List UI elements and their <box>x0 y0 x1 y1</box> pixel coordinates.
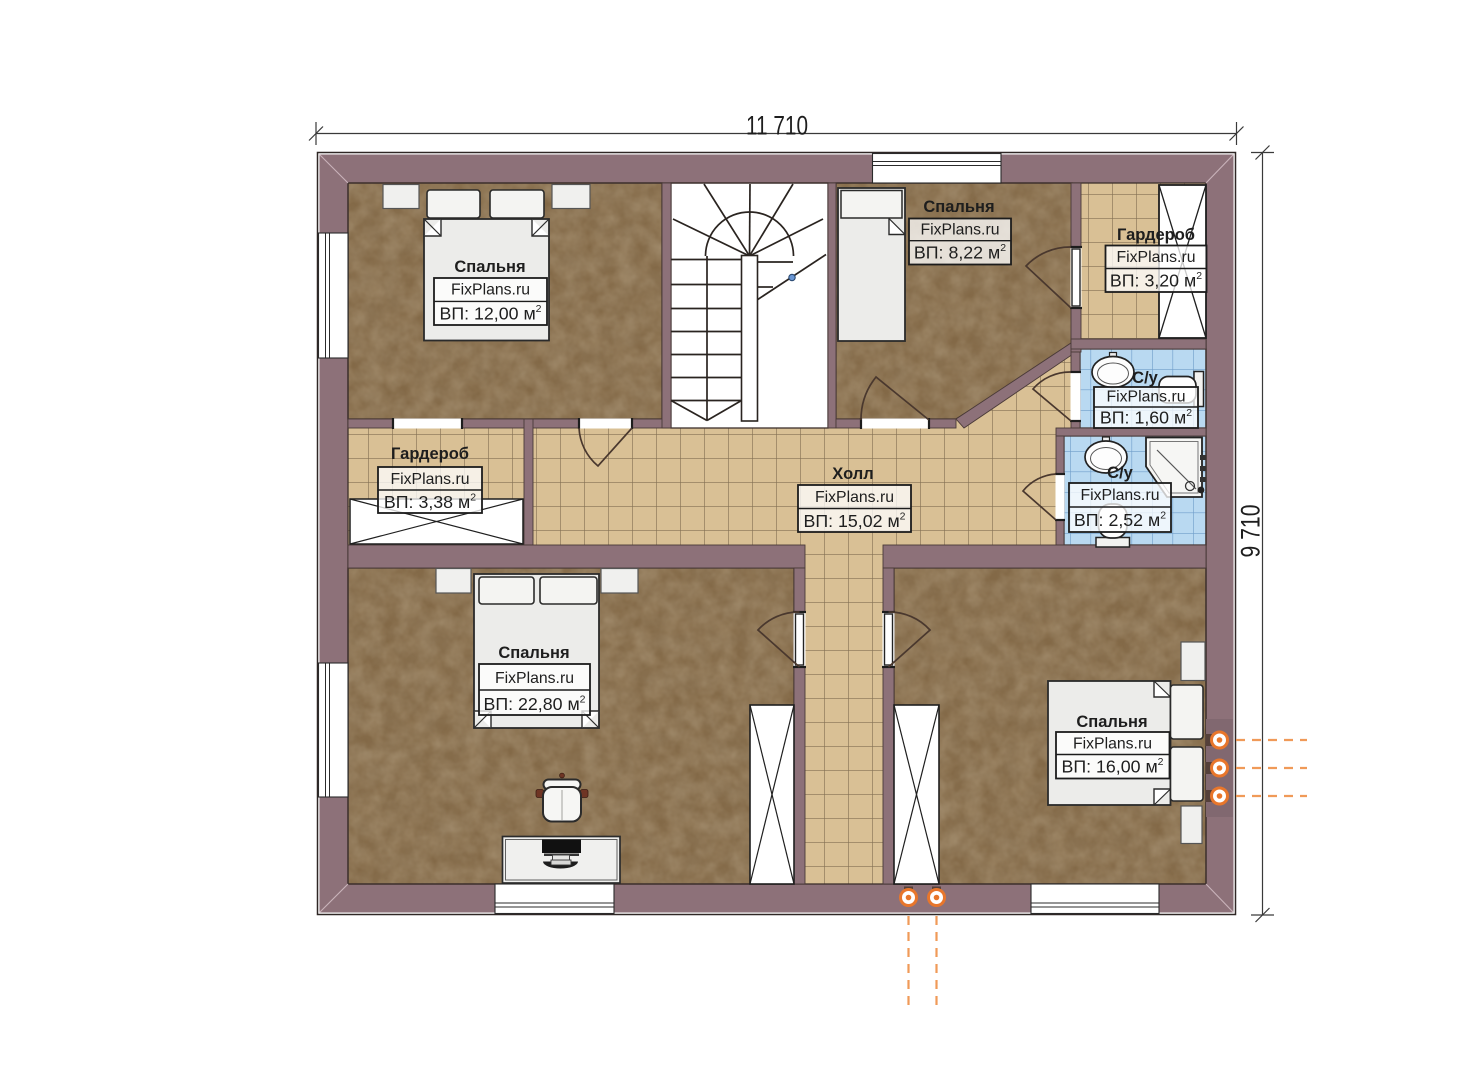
svg-text:Гардероб: Гардероб <box>391 445 469 463</box>
svg-text:11 710: 11 710 <box>746 111 808 141</box>
svg-text:ВП: 12,00 м2: ВП: 12,00 м2 <box>439 303 541 324</box>
svg-text:ВП: 8,22 м2: ВП: 8,22 м2 <box>914 242 1006 263</box>
svg-text:ВП: 16,00 м2: ВП: 16,00 м2 <box>1061 756 1163 777</box>
svg-text:Спальня: Спальня <box>454 258 525 276</box>
svg-text:С/у: С/у <box>1132 369 1159 387</box>
svg-text:Спальня: Спальня <box>923 198 994 216</box>
svg-text:Спальня: Спальня <box>498 644 569 662</box>
svg-text:ВП: 22,80 м2: ВП: 22,80 м2 <box>483 694 585 715</box>
svg-text:ВП: 1,60 м2: ВП: 1,60 м2 <box>1100 407 1192 428</box>
svg-text:ВП: 3,20 м2: ВП: 3,20 м2 <box>1110 270 1202 291</box>
svg-text:Гардероб: Гардероб <box>1117 226 1195 244</box>
svg-text:ВП: 2,52 м2: ВП: 2,52 м2 <box>1074 510 1166 531</box>
svg-text:С/у: С/у <box>1107 464 1134 482</box>
svg-text:ВП: 15,02 м2: ВП: 15,02 м2 <box>803 511 905 532</box>
svg-text:Холл: Холл <box>832 465 873 483</box>
svg-text:FixPlans.ru: FixPlans.ru <box>1080 487 1159 504</box>
svg-text:9 710: 9 710 <box>1236 505 1266 558</box>
svg-text:Спальня: Спальня <box>1076 713 1147 731</box>
svg-text:FixPlans.ru: FixPlans.ru <box>1116 249 1195 266</box>
svg-text:FixPlans.ru: FixPlans.ru <box>1106 389 1185 406</box>
svg-text:FixPlans.ru: FixPlans.ru <box>495 670 574 687</box>
svg-text:FixPlans.ru: FixPlans.ru <box>1073 736 1152 753</box>
svg-text:FixPlans.ru: FixPlans.ru <box>815 489 894 506</box>
svg-text:FixPlans.ru: FixPlans.ru <box>920 222 999 239</box>
svg-text:FixPlans.ru: FixPlans.ru <box>390 471 469 488</box>
svg-text:ВП: 3,38 м2: ВП: 3,38 м2 <box>384 492 476 513</box>
svg-text:FixPlans.ru: FixPlans.ru <box>451 282 530 299</box>
